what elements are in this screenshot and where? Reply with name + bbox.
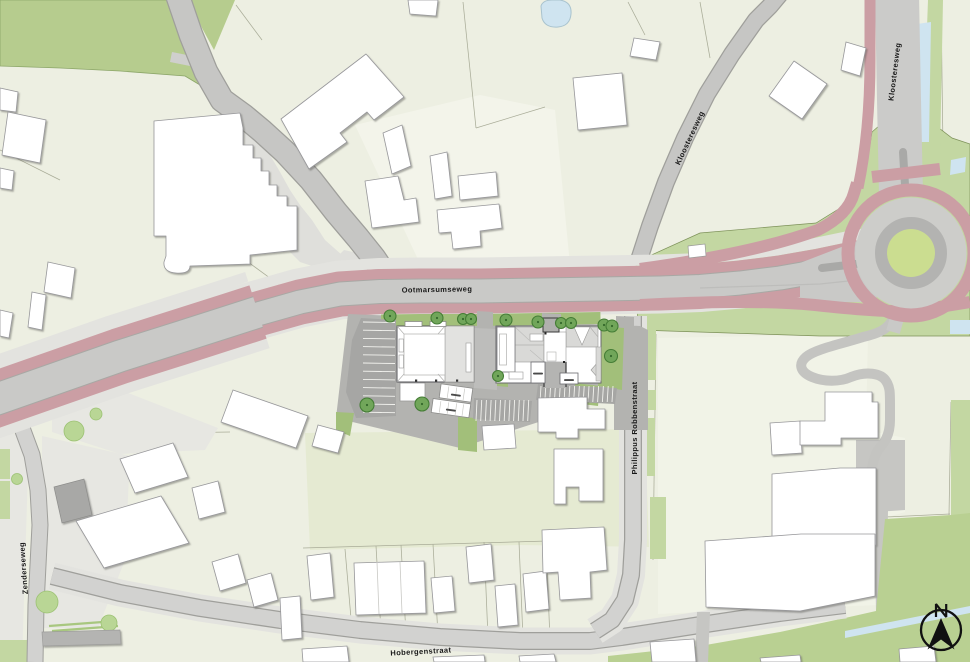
svg-text:Ootmarsumseweg: Ootmarsumseweg <box>402 284 473 294</box>
svg-text:Philippus Robbenstraat: Philippus Robbenstraat <box>630 381 639 474</box>
